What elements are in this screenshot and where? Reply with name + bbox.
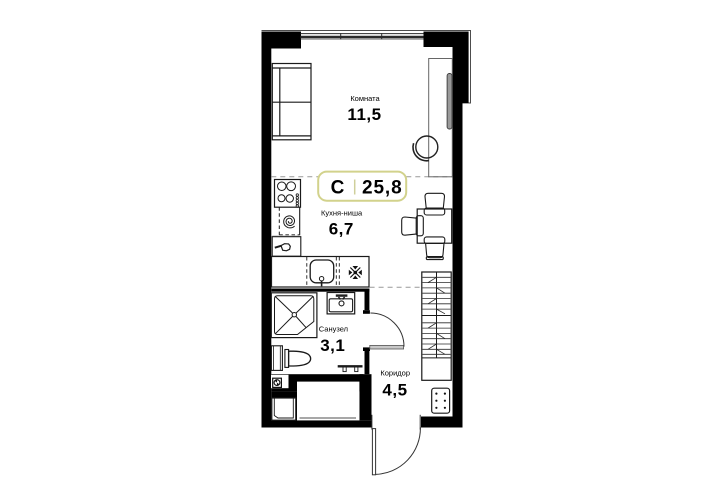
svg-text:6,7: 6,7 [329, 220, 354, 239]
svg-text:4,5: 4,5 [382, 381, 407, 400]
svg-text:Санузел: Санузел [319, 325, 348, 334]
svg-text:Коридор: Коридор [380, 368, 410, 377]
svg-text:25,8: 25,8 [362, 178, 403, 199]
svg-text:11,5: 11,5 [347, 105, 381, 124]
svg-text:3,1: 3,1 [320, 336, 345, 355]
svg-text:Комната: Комната [350, 94, 380, 103]
svg-text:С: С [331, 178, 345, 199]
svg-text:Кухня-ниша: Кухня-ниша [321, 208, 363, 217]
